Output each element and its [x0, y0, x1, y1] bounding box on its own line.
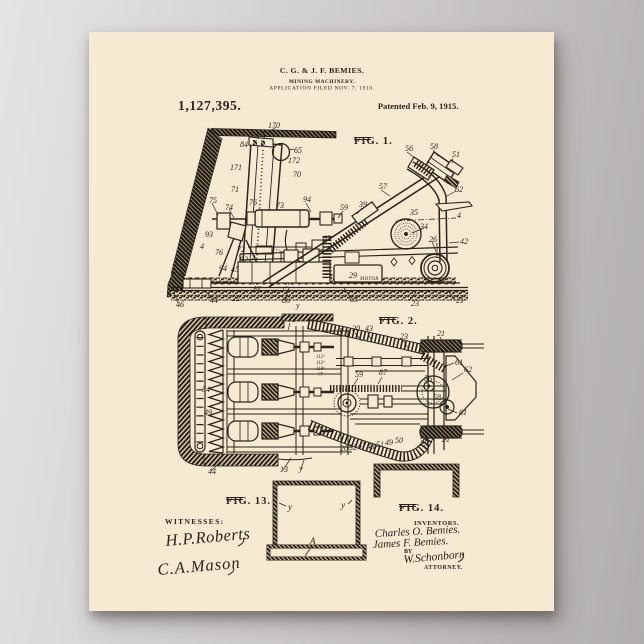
svg-text:23: 23 [400, 332, 408, 341]
svg-text:44: 44 [208, 467, 216, 476]
svg-text:50: 50 [395, 436, 403, 445]
svg-text:172: 172 [288, 156, 300, 165]
svg-text:63: 63 [350, 295, 358, 304]
svg-text:65: 65 [294, 146, 302, 155]
svg-text:56: 56 [424, 374, 432, 383]
svg-text:y: y [340, 500, 345, 510]
svg-text:WITNESSES:: WITNESSES: [165, 517, 224, 526]
svg-text:13: 13 [280, 465, 288, 474]
svg-text:MINING MACHINERY.: MINING MACHINERY. [289, 79, 355, 85]
svg-text:51: 51 [452, 150, 460, 159]
svg-text:84: 84 [240, 140, 248, 149]
svg-text:4: 4 [200, 242, 204, 251]
svg-text:4: 4 [457, 211, 461, 220]
svg-text:23: 23 [411, 299, 419, 308]
svg-text:26: 26 [429, 235, 437, 244]
svg-text:56: 56 [405, 144, 413, 153]
svg-text:63: 63 [323, 234, 331, 243]
svg-text:A: A [309, 536, 316, 546]
svg-text:94: 94 [303, 195, 311, 204]
svg-text:42: 42 [460, 237, 468, 246]
svg-text:29: 29 [349, 271, 357, 280]
svg-text:y: y [295, 301, 300, 310]
svg-text:47: 47 [358, 441, 367, 450]
svg-text:118ᵃ: 118ᵃ [316, 367, 325, 372]
svg-text:20: 20 [352, 324, 360, 333]
svg-text:21: 21 [437, 329, 445, 338]
svg-text:57: 57 [379, 182, 388, 191]
svg-text:74: 74 [225, 203, 233, 212]
svg-text:77: 77 [318, 373, 324, 378]
svg-text:C. G. & J. F. BEMIES.: C. G. & J. F. BEMIES. [280, 66, 364, 75]
svg-text:171: 171 [230, 163, 242, 172]
svg-text:51: 51 [376, 440, 384, 449]
svg-text:61: 61 [459, 408, 467, 417]
svg-text:71: 71 [231, 185, 239, 194]
svg-text:93: 93 [205, 230, 213, 239]
svg-text:35: 35 [409, 208, 418, 217]
svg-text:Patented Feb. 9, 1915.: Patented Feb. 9, 1915. [378, 101, 459, 111]
svg-text:1,127,395.: 1,127,395. [178, 98, 241, 113]
svg-text:73: 73 [288, 315, 296, 324]
svg-text:87: 87 [379, 368, 388, 377]
svg-text:76: 76 [249, 198, 257, 207]
svg-text:59: 59 [340, 203, 348, 212]
svg-text:112ᵃ: 112ᵃ [316, 355, 325, 360]
svg-text:20: 20 [340, 444, 348, 453]
svg-text:H.P.Roberts: H.P.Roberts [164, 524, 251, 550]
svg-text:22: 22 [232, 294, 240, 303]
svg-text:A: A [172, 258, 178, 267]
svg-text:92: 92 [240, 255, 248, 264]
svg-text:94: 94 [219, 264, 227, 273]
svg-text:59: 59 [355, 370, 363, 379]
svg-text:76: 76 [215, 248, 223, 257]
svg-text:21: 21 [442, 435, 450, 444]
svg-text:49: 49 [385, 438, 393, 447]
svg-text:72: 72 [237, 245, 245, 254]
svg-text:61: 61 [455, 358, 463, 367]
svg-text:45: 45 [231, 265, 239, 274]
svg-text:70: 70 [293, 170, 301, 179]
svg-text:62: 62 [455, 185, 463, 194]
svg-text:75: 75 [209, 196, 217, 205]
svg-text:W.Schonborn: W.Schonborn [403, 549, 465, 566]
svg-text:73: 73 [276, 201, 284, 210]
svg-text:y: y [287, 502, 292, 512]
svg-text:58: 58 [430, 142, 438, 151]
svg-text:87: 87 [253, 285, 262, 294]
svg-text:52: 52 [349, 443, 357, 452]
svg-text:MOTOR: MOTOR [359, 277, 379, 282]
svg-text:58: 58 [433, 393, 441, 402]
svg-text:21: 21 [456, 296, 464, 305]
svg-text:23: 23 [420, 439, 428, 448]
svg-text:54: 54 [202, 385, 210, 394]
svg-text:43: 43 [365, 324, 373, 333]
svg-text:ATTORNEY.: ATTORNEY. [424, 565, 463, 571]
svg-text:112ᵇ: 112ᵇ [316, 360, 325, 366]
svg-text:43: 43 [367, 442, 375, 451]
svg-text:49: 49 [204, 408, 212, 417]
svg-text:39: 39 [358, 200, 367, 209]
svg-text:62: 62 [464, 365, 472, 374]
svg-text:APPLICATION FILED NOV. 7, 1910: APPLICATION FILED NOV. 7, 1910. [269, 86, 375, 92]
